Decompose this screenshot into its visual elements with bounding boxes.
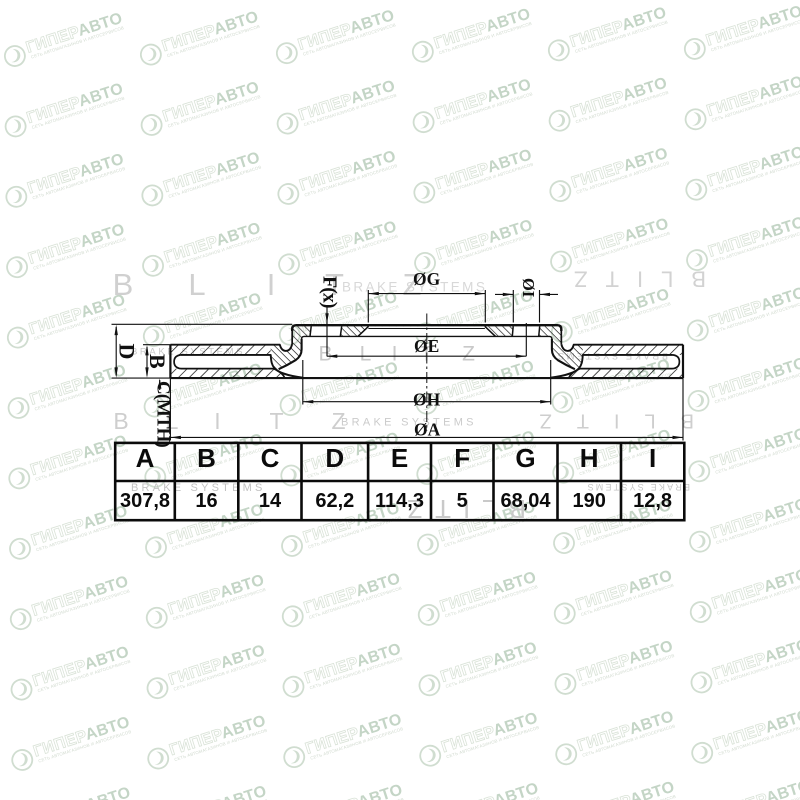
svg-text:L: L <box>360 343 372 366</box>
svg-text:Z: Z <box>462 343 475 366</box>
svg-text:68,04: 68,04 <box>500 490 551 512</box>
svg-text:G: G <box>515 443 535 473</box>
svg-text:I: I <box>214 408 220 434</box>
svg-text:BLITZ: BLITZ <box>515 410 694 432</box>
svg-text:C: C <box>261 443 280 473</box>
svg-text:ØH: ØH <box>413 390 441 410</box>
svg-text:ØE: ØE <box>414 336 439 356</box>
svg-text:L: L <box>188 267 205 302</box>
svg-text:114,3: 114,3 <box>375 490 424 512</box>
svg-text:E: E <box>391 443 408 473</box>
svg-text:14: 14 <box>259 490 282 512</box>
svg-text:A: A <box>136 443 155 473</box>
svg-text:F: F <box>454 443 470 473</box>
svg-text:12,8: 12,8 <box>633 490 672 512</box>
svg-text:307,8: 307,8 <box>120 490 170 512</box>
svg-text:F(x): F(x) <box>319 276 341 308</box>
svg-text:D: D <box>325 443 344 473</box>
svg-text:I: I <box>649 443 656 473</box>
svg-text:H: H <box>580 443 599 473</box>
svg-text:ØG: ØG <box>413 269 441 289</box>
svg-text:16: 16 <box>195 490 217 512</box>
svg-text:ØA: ØA <box>414 420 441 440</box>
svg-text:ØI: ØI <box>519 278 538 297</box>
svg-text:B: B <box>113 267 134 302</box>
svg-text:I: I <box>267 267 276 302</box>
svg-text:62,2: 62,2 <box>315 490 354 512</box>
svg-text:I: I <box>392 343 398 366</box>
svg-text:BLITZ: BLITZ <box>556 267 706 292</box>
svg-text:B: B <box>197 443 216 473</box>
svg-text:BRAKE SYSTEMS: BRAKE SYSTEMS <box>341 417 477 429</box>
svg-text:190: 190 <box>573 490 606 512</box>
svg-text:B: B <box>318 343 332 366</box>
svg-text:D: D <box>114 344 139 360</box>
svg-text:B: B <box>145 354 170 369</box>
svg-text:5: 5 <box>457 490 468 512</box>
svg-text:T: T <box>269 408 283 434</box>
svg-text:B: B <box>113 408 128 434</box>
